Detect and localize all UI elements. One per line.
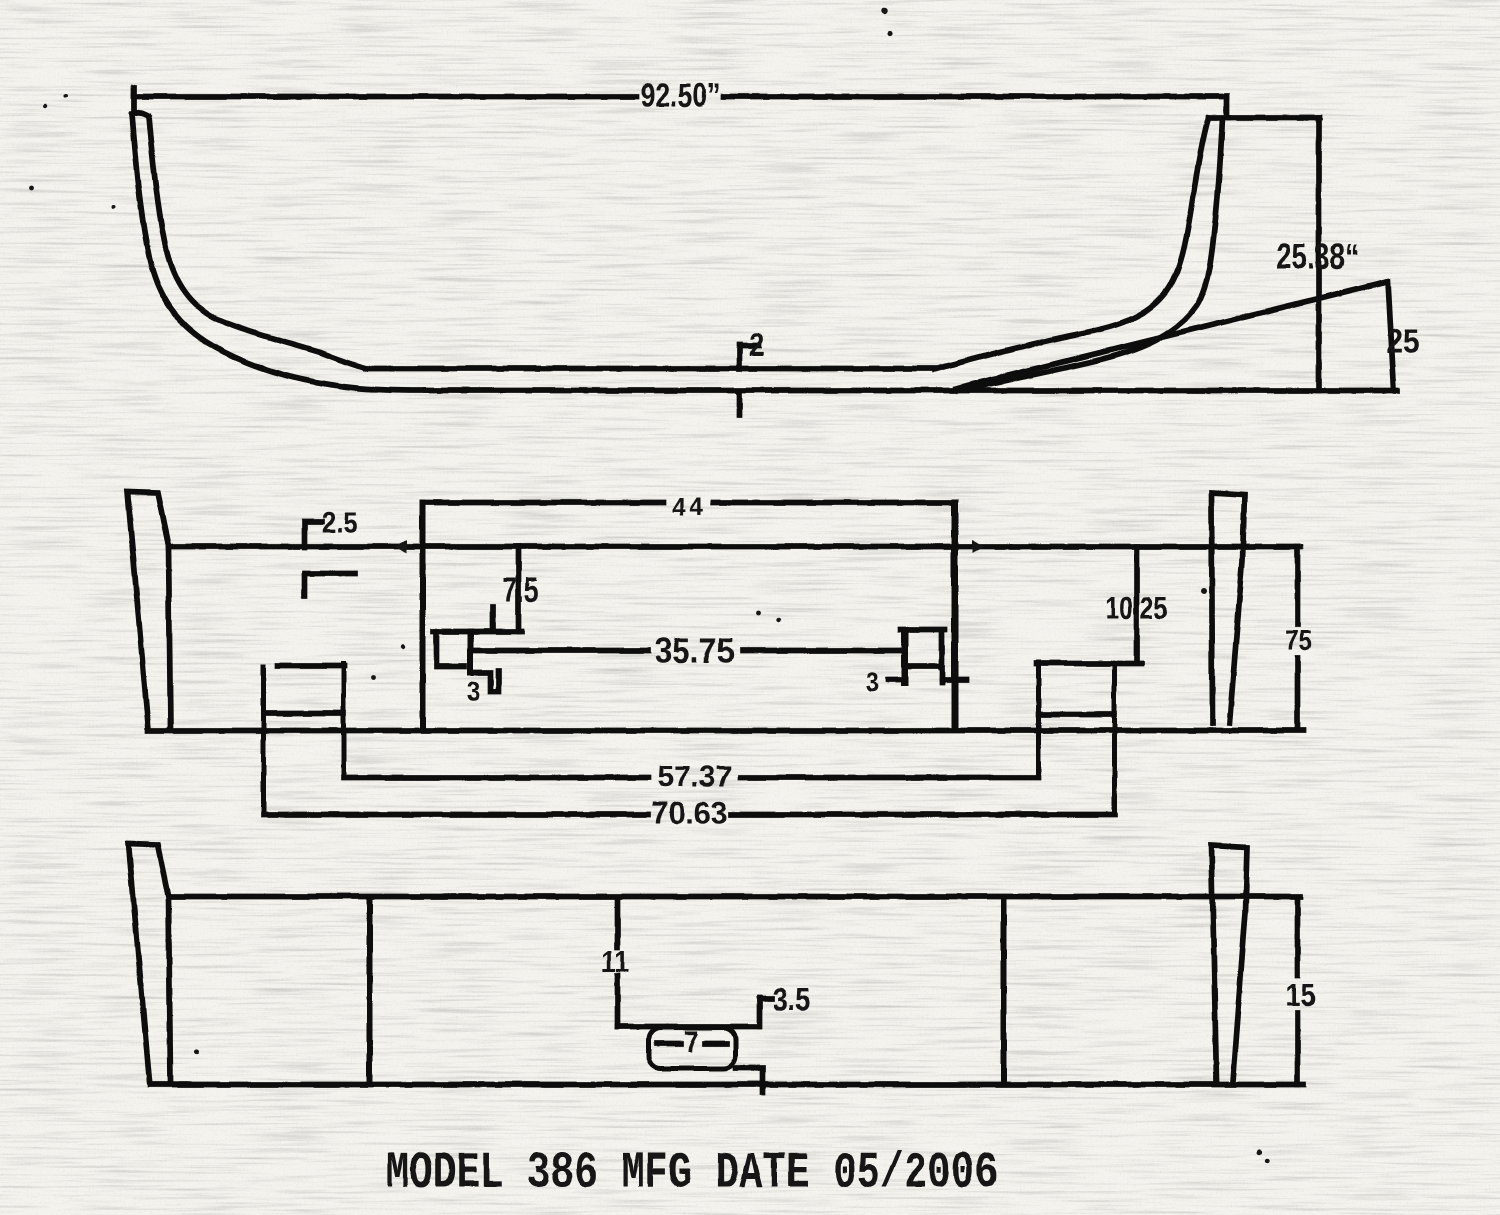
- svg-text:92.50”: 92.50”: [640, 77, 720, 114]
- svg-text:11: 11: [601, 944, 628, 977]
- svg-text:57.37: 57.37: [656, 760, 731, 793]
- svg-text:25.38“: 25.38“: [1276, 237, 1359, 276]
- svg-text:2: 2: [748, 327, 764, 362]
- svg-text:25: 25: [1385, 322, 1418, 360]
- svg-text:10.25: 10.25: [1105, 589, 1168, 624]
- svg-text:35.75: 35.75: [654, 632, 734, 671]
- svg-text:7.5: 7.5: [502, 572, 538, 609]
- svg-text:2.5: 2.5: [321, 505, 357, 538]
- svg-text:3: 3: [466, 677, 479, 707]
- svg-text:MODEL 386 MFG DATE 05/2006: MODEL 386 MFG DATE 05/2006: [385, 1143, 998, 1201]
- svg-text:7: 7: [684, 1025, 698, 1060]
- svg-text:70.63: 70.63: [651, 794, 726, 830]
- svg-text:15: 15: [1285, 978, 1315, 1012]
- svg-text:3.5: 3.5: [772, 982, 810, 1018]
- svg-text:75: 75: [1285, 624, 1312, 657]
- svg-text:44: 44: [671, 492, 707, 521]
- svg-text:3: 3: [865, 668, 878, 698]
